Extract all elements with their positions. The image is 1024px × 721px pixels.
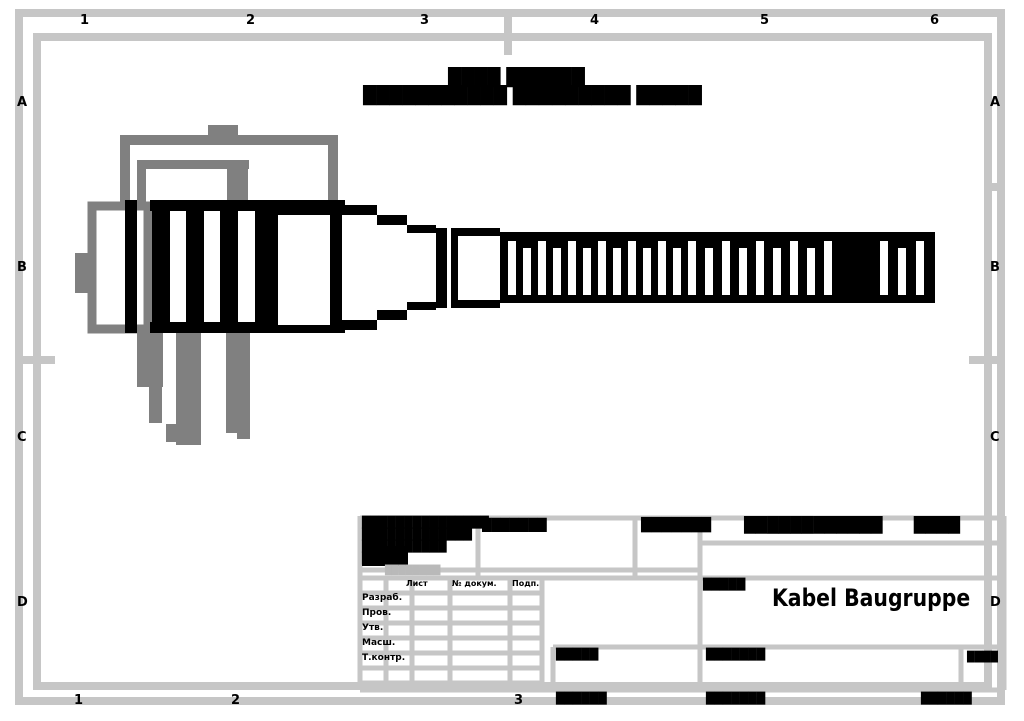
gray-leader-3 bbox=[226, 330, 250, 433]
zone-label-right-a: A bbox=[990, 96, 1000, 109]
zone-label-left-a: A bbox=[17, 96, 27, 109]
zone-label-bottom-1: 1 bbox=[74, 694, 83, 707]
zone-label-right-d: D bbox=[990, 596, 1001, 609]
zone-label-top-6: 6 bbox=[930, 14, 939, 27]
drawing-note-line-2: ███████████ █████████ █████ bbox=[363, 88, 702, 105]
gray-leader-3-tail bbox=[237, 428, 250, 439]
gray-inner-drop-2 bbox=[227, 160, 248, 206]
gray-right-drop bbox=[328, 135, 338, 207]
gray-left-drop bbox=[120, 135, 130, 207]
zone-label-bottom-3: 3 bbox=[514, 694, 523, 707]
taper-seg-1-inner bbox=[342, 215, 377, 320]
centering-mark-left bbox=[15, 356, 55, 364]
column-header-docnum: № докум. bbox=[452, 580, 497, 588]
gray-leader-1b bbox=[149, 387, 162, 423]
sleeve-bottom bbox=[458, 300, 500, 308]
row-label-tcontrol: Т.контр. bbox=[362, 654, 405, 663]
sheet-cell-label: ████ bbox=[967, 653, 998, 663]
row-label-designed: Разраб. bbox=[362, 594, 402, 603]
footer-label-1: ██████ bbox=[556, 693, 607, 704]
zone-label-left-d: D bbox=[17, 596, 28, 609]
zone-label-left-b: B bbox=[17, 261, 27, 274]
sleeve-top bbox=[458, 228, 500, 236]
mid-cell-label: █████ bbox=[556, 649, 598, 660]
zone-label-top-1: 1 bbox=[80, 14, 89, 27]
designation-cell: ████████████ ████ bbox=[744, 518, 960, 533]
gray-inner-drop-1 bbox=[137, 160, 146, 206]
zone-label-right-b: B bbox=[990, 261, 1000, 274]
body-rib-3 bbox=[220, 211, 238, 322]
drawing-note-line-1: ████ ██████ bbox=[448, 70, 585, 87]
body-left-wall bbox=[125, 200, 137, 333]
taper-seg-2-inner bbox=[377, 225, 407, 310]
revision-line-1: ███████████████ bbox=[362, 517, 489, 528]
gray-leader-2 bbox=[176, 330, 201, 445]
ring-1 bbox=[436, 228, 447, 308]
column-header-sign: Подп. bbox=[512, 580, 539, 588]
cad-drawing-page: 1 2 3 4 5 6 1 2 3 A B C D A B C D ████ █… bbox=[0, 0, 1024, 721]
gray-end-cap bbox=[92, 206, 148, 329]
right-cell-label: ███████ bbox=[706, 649, 765, 660]
zone-label-top-5: 5 bbox=[760, 14, 769, 27]
revision-line-4: █████ bbox=[362, 553, 404, 564]
row-label-scale: Масш. bbox=[362, 639, 395, 648]
taper-seg-3-inner bbox=[407, 233, 436, 302]
zone-label-top-2: 2 bbox=[246, 14, 255, 27]
corrugated-tube bbox=[500, 232, 935, 303]
drawing-title: Kabel Baugruppe bbox=[772, 586, 970, 610]
gray-top-line bbox=[120, 135, 338, 145]
body-rib-2 bbox=[186, 211, 204, 322]
zone-label-left-c: C bbox=[17, 431, 27, 444]
body-block-window bbox=[278, 215, 330, 325]
revision-gray-note: ████████ bbox=[385, 567, 440, 576]
revision-line-2: █████████████ bbox=[362, 529, 472, 540]
zone-divider-right bbox=[992, 183, 1002, 191]
gray-leader-1 bbox=[137, 330, 163, 387]
lit-cell-label: █████ bbox=[703, 579, 745, 590]
cell-c-label: ███████ bbox=[641, 519, 711, 532]
footer-label-3: ██████ bbox=[921, 693, 972, 704]
zone-label-right-c: C bbox=[990, 431, 1000, 444]
ring-2 bbox=[451, 228, 458, 308]
gray-end-tab bbox=[75, 253, 90, 293]
body-rib-1 bbox=[152, 211, 170, 322]
row-label-approved: Утв. bbox=[362, 624, 383, 633]
centering-mark-right bbox=[969, 356, 1005, 364]
zone-label-top-3: 3 bbox=[420, 14, 429, 27]
zone-label-bottom-2: 2 bbox=[231, 694, 240, 707]
column-header-sheet: Лист bbox=[406, 580, 428, 588]
zone-label-top-4: 4 bbox=[590, 14, 599, 27]
revision-line-3: ██████████ bbox=[362, 541, 447, 552]
footer-label-2: ███████ bbox=[706, 693, 765, 704]
gray-leader-2-foot bbox=[166, 424, 177, 442]
row-label-checked: Пров. bbox=[362, 609, 391, 618]
drawing-canvas bbox=[0, 0, 1024, 721]
cell-b-label: ███████ bbox=[482, 519, 547, 531]
centering-mark-top bbox=[504, 9, 512, 55]
